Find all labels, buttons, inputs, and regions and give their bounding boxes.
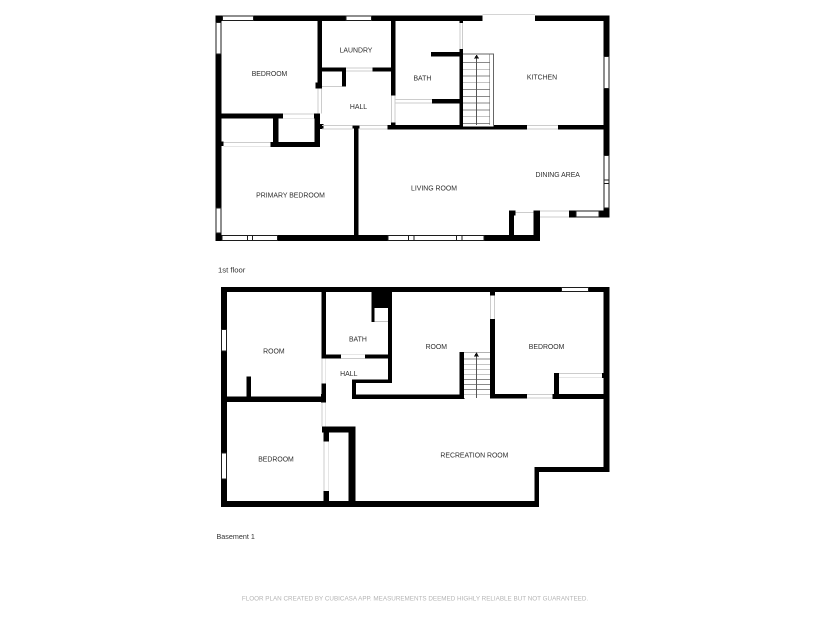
svg-text:LAUNDRY: LAUNDRY [340,48,373,55]
svg-text:BEDROOM: BEDROOM [252,71,288,78]
svg-text:DINING AREA: DINING AREA [535,172,580,179]
svg-text:BEDROOM: BEDROOM [529,344,565,351]
svg-text:Basement 1: Basement 1 [217,532,255,541]
svg-text:1st floor: 1st floor [218,266,246,275]
svg-text:BATH: BATH [413,76,431,83]
svg-text:LIVING ROOM: LIVING ROOM [411,186,457,193]
svg-text:HALL: HALL [350,104,367,111]
svg-text:BEDROOM: BEDROOM [258,457,294,464]
svg-text:ROOM: ROOM [426,344,448,351]
svg-text:RECREATION ROOM: RECREATION ROOM [440,453,508,460]
svg-text:HALL: HALL [340,371,357,378]
svg-text:PRIMARY BEDROOM: PRIMARY BEDROOM [256,193,325,200]
svg-text:BATH: BATH [349,337,367,344]
svg-text:FLOOR PLAN CREATED BY CUBICASA: FLOOR PLAN CREATED BY CUBICASA APP. MEAS… [242,595,589,602]
svg-text:KITCHEN: KITCHEN [527,75,557,82]
svg-text:ROOM: ROOM [263,348,285,355]
